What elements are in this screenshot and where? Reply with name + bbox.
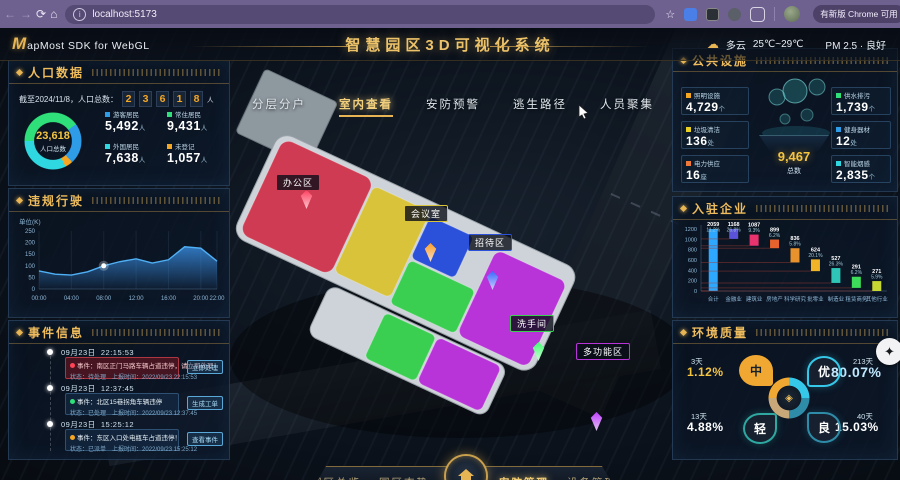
environment-panel: 环境质量 3天 1.12% 213天 80.07% 13天 4.88% 40天 …: [672, 320, 898, 460]
environment-donut: ◈: [767, 376, 811, 420]
population-title: 人口数据: [28, 64, 84, 81]
header-dots-decor: [92, 197, 221, 204]
env-percent: 4.88%: [687, 420, 724, 434]
population-gauge: 23,618 人口总数: [21, 109, 85, 173]
population-asof: 截至2024/11/8，人口总数： 2 3 6 1 8 人: [19, 91, 214, 107]
violation-area-chart: 25020015010050000:0004:0008:0012:0016:00…: [9, 223, 229, 315]
population-legend: 游客居民 5,492人 常住居民 9,431人 外国居民 7,638人 未登记 …: [105, 109, 225, 173]
svg-text:制造业: 制造业: [828, 295, 845, 303]
facility-stat: 智能烟感 2,835个: [831, 155, 891, 183]
svg-text:800: 800: [688, 248, 697, 254]
svg-text:批零业: 批零业: [807, 295, 824, 303]
digit-box: 1: [173, 91, 186, 107]
svg-text:9.3%: 9.3%: [748, 228, 760, 234]
facilities-bubbles: [751, 75, 841, 141]
environment-title: 环境质量: [692, 324, 748, 341]
view-tabs: 分层分户 室内查看 安防预警 逃生路径 人员聚集: [252, 96, 654, 117]
severity-dot-icon: [70, 435, 75, 440]
extension-icon-1[interactable]: [684, 8, 697, 21]
svg-text:0: 0: [694, 289, 697, 295]
gold-diamond-icon: ◈: [785, 393, 793, 404]
nav-安防管理[interactable]: 安防管理: [499, 475, 549, 480]
floating-star-button[interactable]: ✦: [876, 338, 900, 365]
svg-text:50: 50: [28, 275, 35, 281]
extension-icon-3[interactable]: [728, 8, 741, 21]
svg-text:5.9%: 5.9%: [871, 275, 883, 281]
browser-toolbar: ← → ⟳ ⌂ i localhost:5173 ☆ 有新版 Chrome 可用…: [0, 0, 900, 28]
svg-text:100: 100: [25, 264, 36, 270]
header-dots-decor: [756, 205, 889, 212]
tab-分层分户[interactable]: 分层分户: [252, 96, 306, 117]
reload-icon[interactable]: ⟳: [36, 4, 46, 24]
svg-text:金融业: 金融业: [725, 295, 742, 303]
back-icon[interactable]: ←: [4, 4, 16, 24]
svg-text:租赁商务: 租赁商务: [845, 295, 868, 303]
toolbar-divider: [774, 7, 775, 21]
svg-text:科学研究: 科学研究: [784, 295, 807, 303]
house-icon: [457, 468, 475, 480]
address-bar[interactable]: i localhost:5173: [65, 5, 655, 24]
event-action-button[interactable]: 查看事件: [187, 432, 223, 446]
digit-box: 3: [139, 91, 152, 107]
svg-text:1000: 1000: [685, 237, 697, 243]
svg-text:其他行业: 其他行业: [866, 295, 889, 303]
population-panel: 人口数据 截至2024/11/8，人口总数： 2 3 6 1 8 人 23,61…: [8, 60, 230, 186]
event-item: 09月23日 22:15:53 事件：南区正门马路车辆占道违停，请立即处理！ 状…: [9, 347, 229, 381]
gauge-label: 人口总数: [40, 143, 66, 153]
timeline-dot: [47, 349, 53, 355]
env-grade-良: 良: [807, 412, 841, 443]
extensions-puzzle-icon[interactable]: [750, 7, 765, 22]
svg-text:12:00: 12:00: [129, 296, 145, 302]
svg-text:22:00: 22:00: [209, 296, 225, 302]
svg-text:房地产: 房地产: [766, 295, 783, 303]
env-percent: 1.12%: [687, 365, 724, 379]
env-percent: 15.03%: [835, 420, 879, 434]
bookmark-star-icon[interactable]: ☆: [665, 8, 675, 21]
svg-text:5.8%: 5.8%: [789, 242, 801, 248]
companies-panel: 入驻企业 120010008006004002000205911.2%合计116…: [672, 196, 898, 318]
event-card[interactable]: 事件：东区入口处电瓶车占道违停！ 状态：已派单上报时间：2022/09/23 1…: [65, 429, 179, 451]
zone-label-multifunction[interactable]: 多功能区: [576, 343, 630, 360]
legend-item: 外国居民 7,638人: [105, 141, 167, 173]
tab-人员聚集[interactable]: 人员聚集: [600, 96, 654, 117]
diamond-bullet-icon: [680, 328, 687, 335]
event-item: 09月23日 12:37:45 事件：北区15巷拐角车辆违停 状态：已处理上报时…: [9, 383, 229, 417]
facility-stat: 垃圾清洁 136处: [681, 121, 749, 149]
url-text: localhost:5173: [92, 9, 157, 20]
facility-stat: 照明设施 4,729个: [681, 87, 749, 115]
svg-text:08:00: 08:00: [96, 296, 112, 302]
logo-text: apMost SDK for WebGL: [27, 40, 149, 52]
header-dots-decor: [92, 329, 221, 336]
chrome-update-button[interactable]: 有新版 Chrome 可用: [813, 5, 900, 23]
event-card[interactable]: 事件：北区15巷拐角车辆违停 状态：已处理上报时间：2022/09/23 12:…: [65, 393, 179, 415]
severity-dot-icon: [70, 363, 75, 368]
weather-widget: ☁ 多云 25℃~29℃ PM 2.5 · 良好: [707, 28, 886, 60]
violation-panel: 违规行驶 单位(K) 25020015010050000:0004:0008:0…: [8, 188, 230, 318]
tab-逃生路径[interactable]: 逃生路径: [513, 96, 567, 117]
companies-title: 入驻企业: [692, 200, 748, 217]
events-panel: 事件信息 09月23日 22:15:53 事件：南区正门马路车辆占道违停，请立即…: [8, 320, 230, 460]
weather-temp: 25℃~29℃: [753, 39, 804, 50]
digit-box: 2: [122, 91, 135, 107]
companies-bar-chart: 120010008006004002000205911.2%合计116826.8…: [673, 221, 897, 315]
svg-text:150: 150: [25, 252, 36, 258]
header-decor-line: [190, 46, 350, 47]
timeline-dot: [47, 385, 53, 391]
legend-item: 未登记 1,057人: [167, 141, 225, 173]
profile-avatar[interactable]: [784, 6, 800, 22]
env-grade-优: 优: [807, 356, 841, 387]
home-icon[interactable]: ⌂: [50, 4, 57, 24]
gauge-value: 23,618: [36, 130, 70, 142]
svg-text:200: 200: [25, 241, 36, 247]
header-decor-line: [490, 46, 650, 47]
event-action-button[interactable]: 生成工单: [187, 396, 223, 410]
violation-title: 违规行驶: [28, 192, 84, 209]
svg-text:600: 600: [688, 258, 697, 264]
event-card[interactable]: 事件：南区正门马路车辆占道违停，请立即处理！ 状态：待处理上报时间：2022/0…: [65, 357, 179, 379]
header-dots-decor: [92, 69, 221, 76]
svg-text:1200: 1200: [685, 227, 697, 233]
extension-icon-2[interactable]: [706, 8, 719, 21]
svg-text:400: 400: [688, 268, 697, 274]
zone-label-restroom[interactable]: 洗手间: [510, 315, 554, 332]
nav-园区态势[interactable]: 园区态势: [379, 475, 429, 480]
legend-item: 常住居民 9,431人: [167, 109, 225, 141]
weather-pm: PM 2.5 · 良好: [825, 37, 886, 52]
svg-text:6.2%: 6.2%: [851, 270, 863, 276]
svg-text:6.2%: 6.2%: [769, 233, 781, 239]
cloud-icon: ☁: [707, 37, 719, 51]
diamond-bullet-icon: [16, 68, 23, 75]
svg-text:26.8%: 26.8%: [727, 228, 742, 234]
dashboard-scene: 办公区 会议室 招待区 洗手间 多功能区 M apMost SDK for We…: [0, 28, 900, 480]
events-title: 事件信息: [28, 324, 84, 341]
header-dots-decor: [756, 329, 889, 336]
svg-text:建筑业: 建筑业: [746, 295, 763, 303]
timeline-dot: [47, 421, 53, 427]
facilities-panel: 公共设施 照明设施 4,729个 垃圾清洁 136处 电力供应 16座 供水排污…: [672, 48, 898, 192]
svg-text:20:00: 20:00: [193, 296, 209, 302]
diamond-bullet-icon: [16, 328, 23, 335]
zone-label-meeting[interactable]: 会议室: [404, 205, 448, 222]
severity-dot-icon: [70, 399, 75, 404]
tab-室内查看[interactable]: 室内查看: [339, 96, 393, 117]
legend-item: 游客居民 5,492人: [105, 109, 167, 141]
svg-text:0: 0: [32, 287, 36, 293]
weather-condition: 多云: [726, 37, 746, 52]
logo-mark: M: [12, 34, 26, 54]
site-info-icon[interactable]: i: [73, 8, 86, 21]
svg-text:11.2%: 11.2%: [706, 228, 720, 234]
tab-安防预警[interactable]: 安防预警: [426, 96, 480, 117]
forward-icon[interactable]: →: [20, 4, 32, 24]
app-root: ← → ⟳ ⌂ i localhost:5173 ☆ 有新版 Chrome 可用…: [0, 0, 900, 480]
zone-label-reception[interactable]: 招待区: [468, 234, 512, 251]
svg-text:合计: 合计: [708, 295, 720, 303]
diamond-bullet-icon: [16, 196, 23, 203]
facilities-total: 9,467 总数: [757, 149, 831, 176]
diamond-bullet-icon: [680, 204, 687, 211]
svg-text:04:00: 04:00: [64, 296, 80, 302]
svg-text:00:00: 00:00: [31, 296, 47, 302]
facility-stat: 电力供应 16座: [681, 155, 749, 183]
event-item: 09月23日 15:25:12 事件：东区入口处电瓶车占道违停！ 状态：已派单上…: [9, 419, 229, 453]
digit-box: 8: [190, 91, 203, 107]
svg-text:16:00: 16:00: [161, 296, 177, 302]
svg-text:26.3%: 26.3%: [829, 262, 844, 268]
svg-text:20.1%: 20.1%: [808, 253, 823, 259]
logo: M apMost SDK for WebGL: [12, 34, 150, 54]
event-action-button[interactable]: 立即处理: [187, 360, 223, 374]
digit-box: 6: [156, 91, 169, 107]
zone-label-office[interactable]: 办公区: [276, 174, 320, 191]
svg-text:200: 200: [688, 279, 697, 285]
app-header: M apMost SDK for WebGL 智慧园区3D可视化系统 ☁ 多云 …: [0, 28, 900, 61]
page-title: 智慧园区3D可视化系统: [345, 34, 554, 55]
svg-text:250: 250: [25, 229, 36, 235]
population-panel-header: 人口数据: [9, 61, 229, 84]
